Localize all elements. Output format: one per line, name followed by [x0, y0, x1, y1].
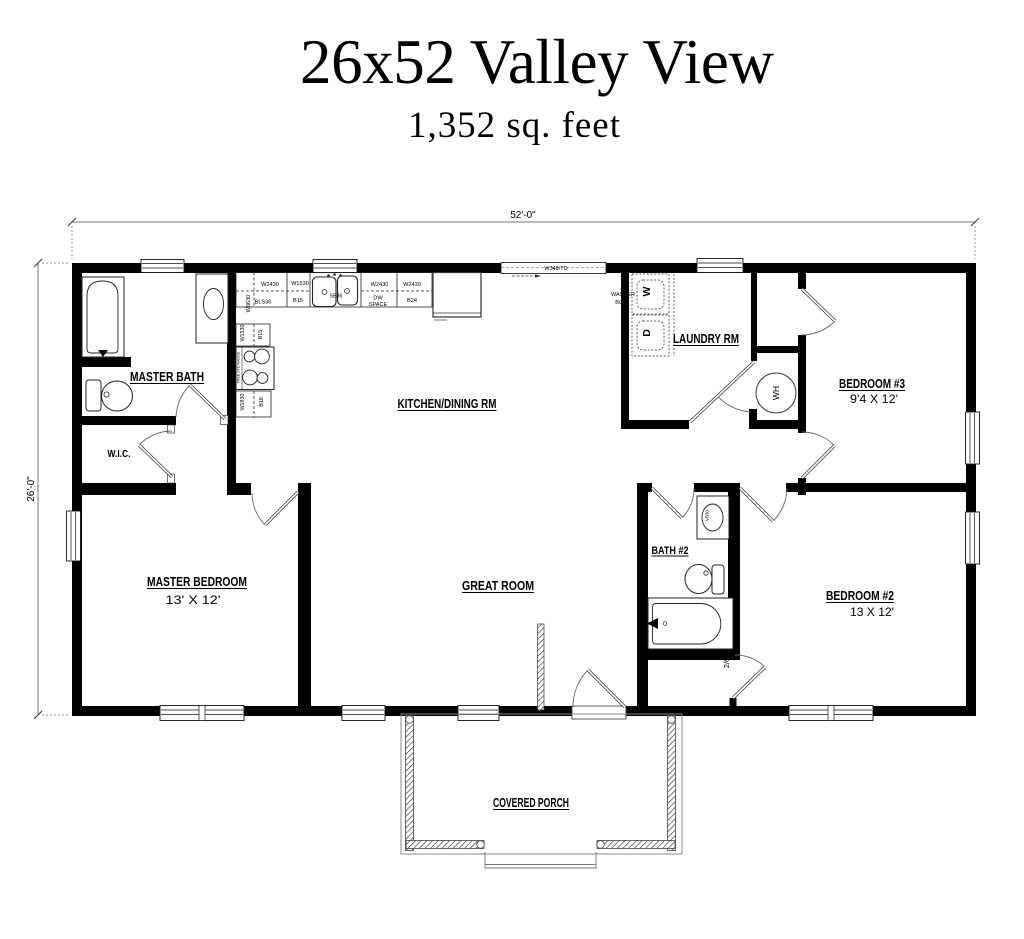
svg-text:26x52 Valley View: 26x52 Valley View — [300, 27, 775, 97]
svg-text:VB30: VB30 — [705, 509, 710, 521]
svg-text:BEDROOM #3: BEDROOM #3 — [839, 377, 905, 391]
svg-text:BLS36: BLS36 — [255, 300, 272, 306]
svg-text:2/6: 2/6 — [722, 658, 731, 668]
svg-text:DW: DW — [373, 296, 383, 302]
svg-text:13' X 12': 13' X 12' — [166, 593, 221, 607]
svg-text:B15: B15 — [258, 330, 264, 340]
svg-text:SB36: SB36 — [330, 294, 343, 300]
svg-text:W1830: W1830 — [240, 393, 246, 410]
svg-text:13 X 12': 13 X 12' — [850, 605, 894, 619]
svg-text:W: W — [641, 286, 653, 296]
svg-text:B15: B15 — [293, 298, 303, 304]
svg-text:D: D — [641, 329, 653, 337]
svg-text:W1530: W1530 — [240, 324, 246, 341]
svg-text:KITCHEN/DINING RM: KITCHEN/DINING RM — [398, 397, 497, 411]
svg-text:WH: WH — [771, 386, 781, 400]
svg-text:SPACE: SPACE — [369, 302, 388, 308]
svg-text:W348/TD: W348/TD — [544, 266, 567, 272]
svg-text:MASTER BEDROOM: MASTER BEDROOM — [147, 575, 247, 589]
svg-text:BATH #2: BATH #2 — [652, 545, 689, 557]
svg-text:52'-0": 52'-0" — [510, 210, 536, 221]
svg-text:W0630: W0630 — [246, 295, 252, 313]
svg-text:BEDROOM #2: BEDROOM #2 — [826, 589, 894, 603]
svg-text:W2430: W2430 — [261, 282, 279, 288]
svg-text:MASTER BATH: MASTER BATH — [130, 370, 204, 384]
svg-text:B18: B18 — [259, 397, 265, 407]
svg-text:B24: B24 — [407, 298, 417, 304]
svg-text:LAUNDRY RM: LAUNDRY RM — [673, 332, 739, 346]
svg-text:W1530: W1530 — [291, 281, 309, 287]
svg-text:1,352 sq. feet: 1,352 sq. feet — [408, 105, 621, 146]
svg-text:COVERED PORCH: COVERED PORCH — [493, 796, 569, 810]
svg-text:GREAT ROOM: GREAT ROOM — [462, 579, 534, 593]
svg-text:9'4 X 12': 9'4 X 12' — [850, 392, 898, 406]
svg-text:W2430: W2430 — [403, 282, 421, 288]
svg-text:FREE STD RANGE: FREE STD RANGE — [237, 351, 241, 383]
svg-text:W.I.C.: W.I.C. — [108, 449, 131, 460]
svg-text:W2430: W2430 — [371, 282, 389, 288]
svg-text:26'-0": 26'-0" — [26, 476, 37, 502]
